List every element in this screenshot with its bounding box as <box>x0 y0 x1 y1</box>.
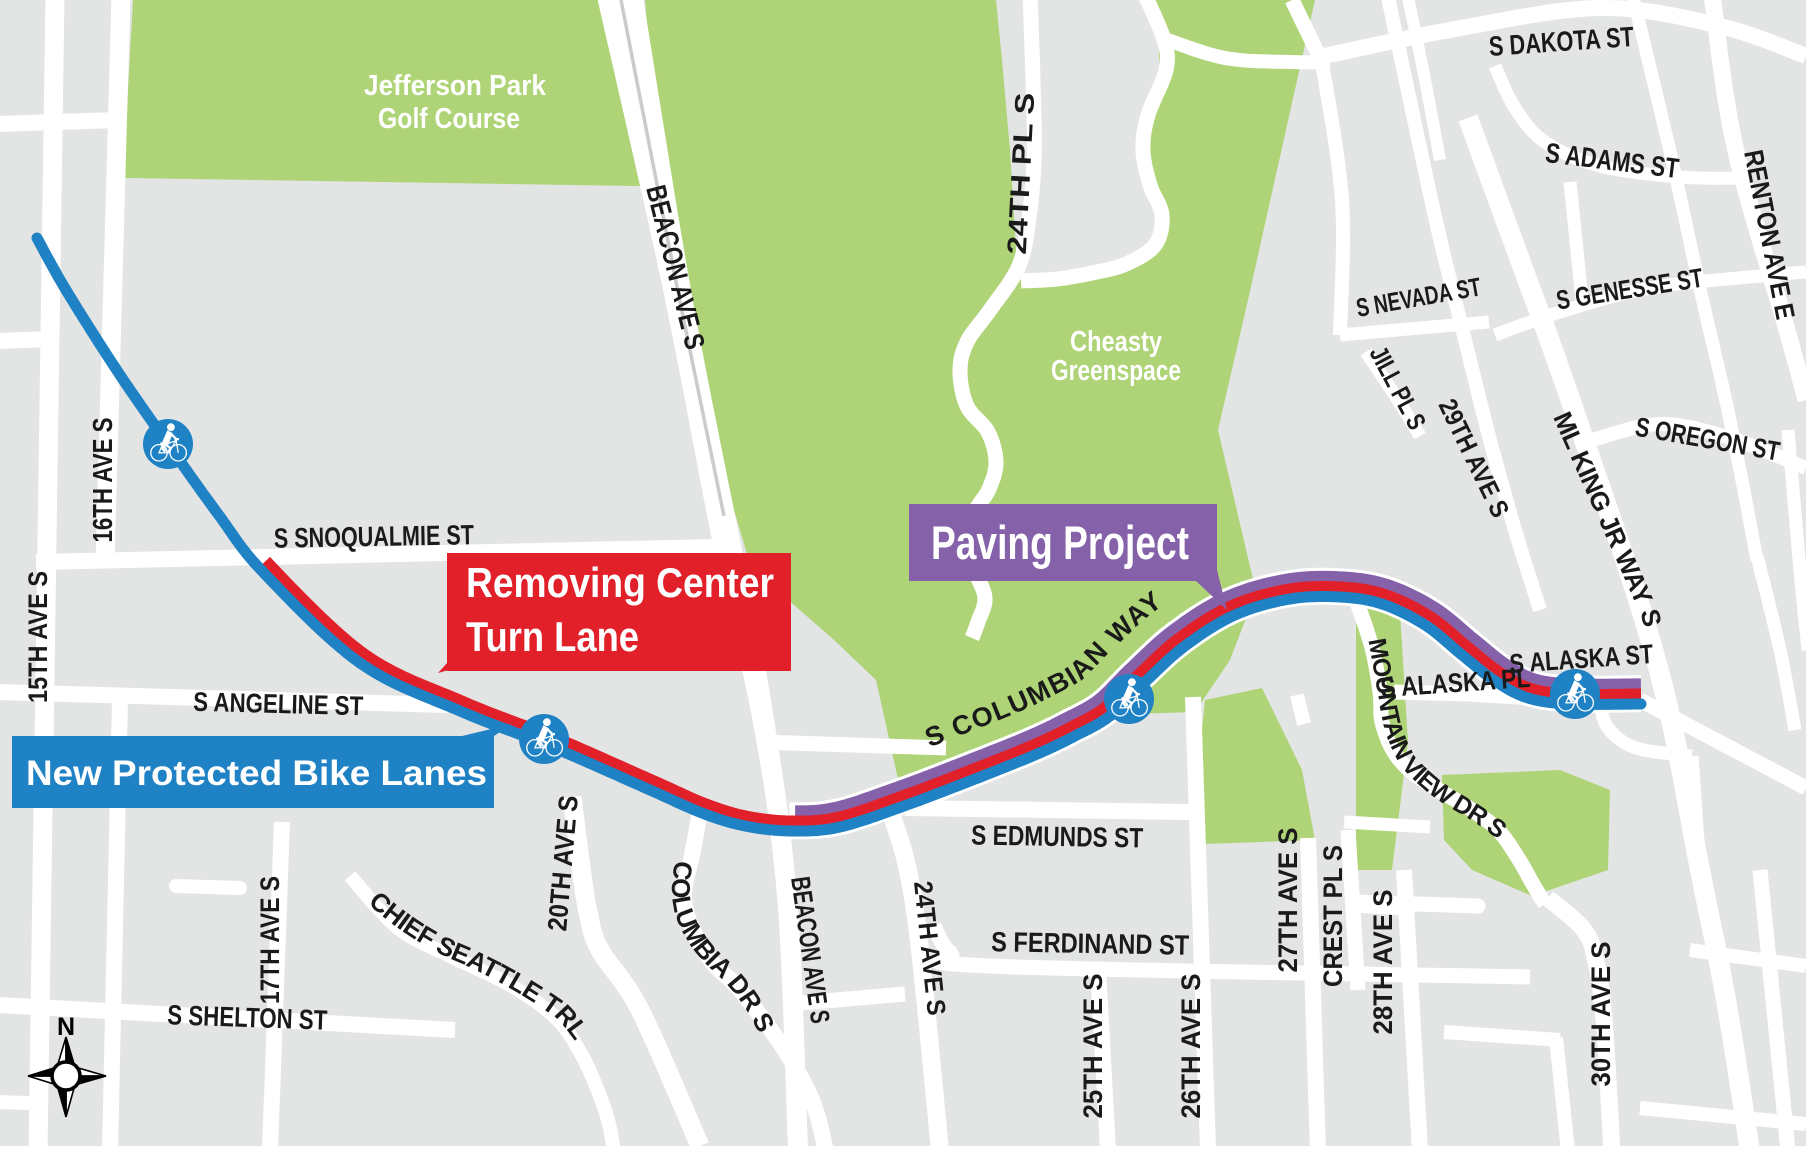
svg-text:Turn Lane: Turn Lane <box>466 613 639 660</box>
svg-text:Greenspace: Greenspace <box>1051 355 1181 387</box>
svg-text:S SHELTON ST: S SHELTON ST <box>167 999 328 1036</box>
svg-text:28TH AVE S: 28TH AVE S <box>1368 890 1398 1035</box>
svg-text:16TH AVE S: 16TH AVE S <box>87 418 118 543</box>
svg-text:S ANGELINE ST: S ANGELINE ST <box>193 687 364 721</box>
svg-text:CREST PL S: CREST PL S <box>1318 845 1348 987</box>
svg-text:Jefferson Park: Jefferson Park <box>364 70 547 102</box>
svg-text:S SNOQUALMIE ST: S SNOQUALMIE ST <box>274 519 475 553</box>
svg-text:17TH AVE S: 17TH AVE S <box>255 876 285 1004</box>
svg-text:S FERDINAND ST: S FERDINAND ST <box>991 926 1190 960</box>
svg-text:N: N <box>57 1013 75 1041</box>
svg-text:15TH AVE S: 15TH AVE S <box>23 571 53 703</box>
svg-text:26TH AVE S: 26TH AVE S <box>1176 974 1206 1119</box>
svg-text:Cheasty: Cheasty <box>1070 326 1162 358</box>
svg-text:27TH AVE S: 27TH AVE S <box>1273 828 1303 973</box>
svg-text:Golf Course: Golf Course <box>378 103 520 135</box>
svg-text:Paving Project: Paving Project <box>931 516 1189 569</box>
svg-text:Removing Center: Removing Center <box>466 559 774 606</box>
svg-text:S EDMUNDS ST: S EDMUNDS ST <box>971 820 1144 854</box>
svg-text:25TH AVE S: 25TH AVE S <box>1078 974 1108 1119</box>
svg-text:New Protected Bike Lanes: New Protected Bike Lanes <box>26 754 487 793</box>
svg-text:30TH AVE S: 30TH AVE S <box>1586 942 1616 1087</box>
